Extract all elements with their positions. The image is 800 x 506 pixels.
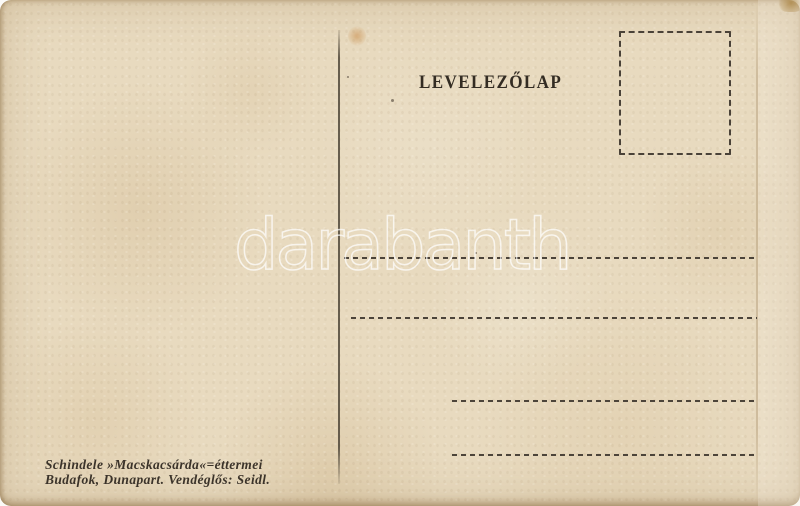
- ink-speck: [347, 76, 349, 78]
- stamp-placement-box: [619, 31, 731, 155]
- center-divider-line: [338, 30, 340, 484]
- corner-stain: [778, 0, 800, 12]
- postcard-back: LEVELEZŐLAP darabanth Schindele »Macskac…: [0, 0, 800, 506]
- address-line-2: [351, 317, 757, 319]
- postcard-title: LEVELEZŐLAP: [419, 72, 562, 94]
- card-crease: [756, 0, 758, 506]
- publisher-line-1: Schindele »Macskacsárda«=éttermei: [45, 457, 270, 472]
- address-line-1: [344, 257, 756, 259]
- darabanth-watermark: darabanth: [234, 210, 570, 280]
- ink-speck: [391, 99, 394, 102]
- card-right-edge: [758, 0, 800, 506]
- address-line-3: [452, 400, 758, 402]
- address-line-4: [452, 454, 757, 456]
- ink-speck: [475, 252, 477, 254]
- rust-stain: [348, 26, 366, 46]
- publisher-line-2: Budafok, Dunapart. Vendéglős: Seidl.: [45, 472, 270, 487]
- publisher-imprint: Schindele »Macskacsárda«=éttermei Budafo…: [45, 457, 270, 487]
